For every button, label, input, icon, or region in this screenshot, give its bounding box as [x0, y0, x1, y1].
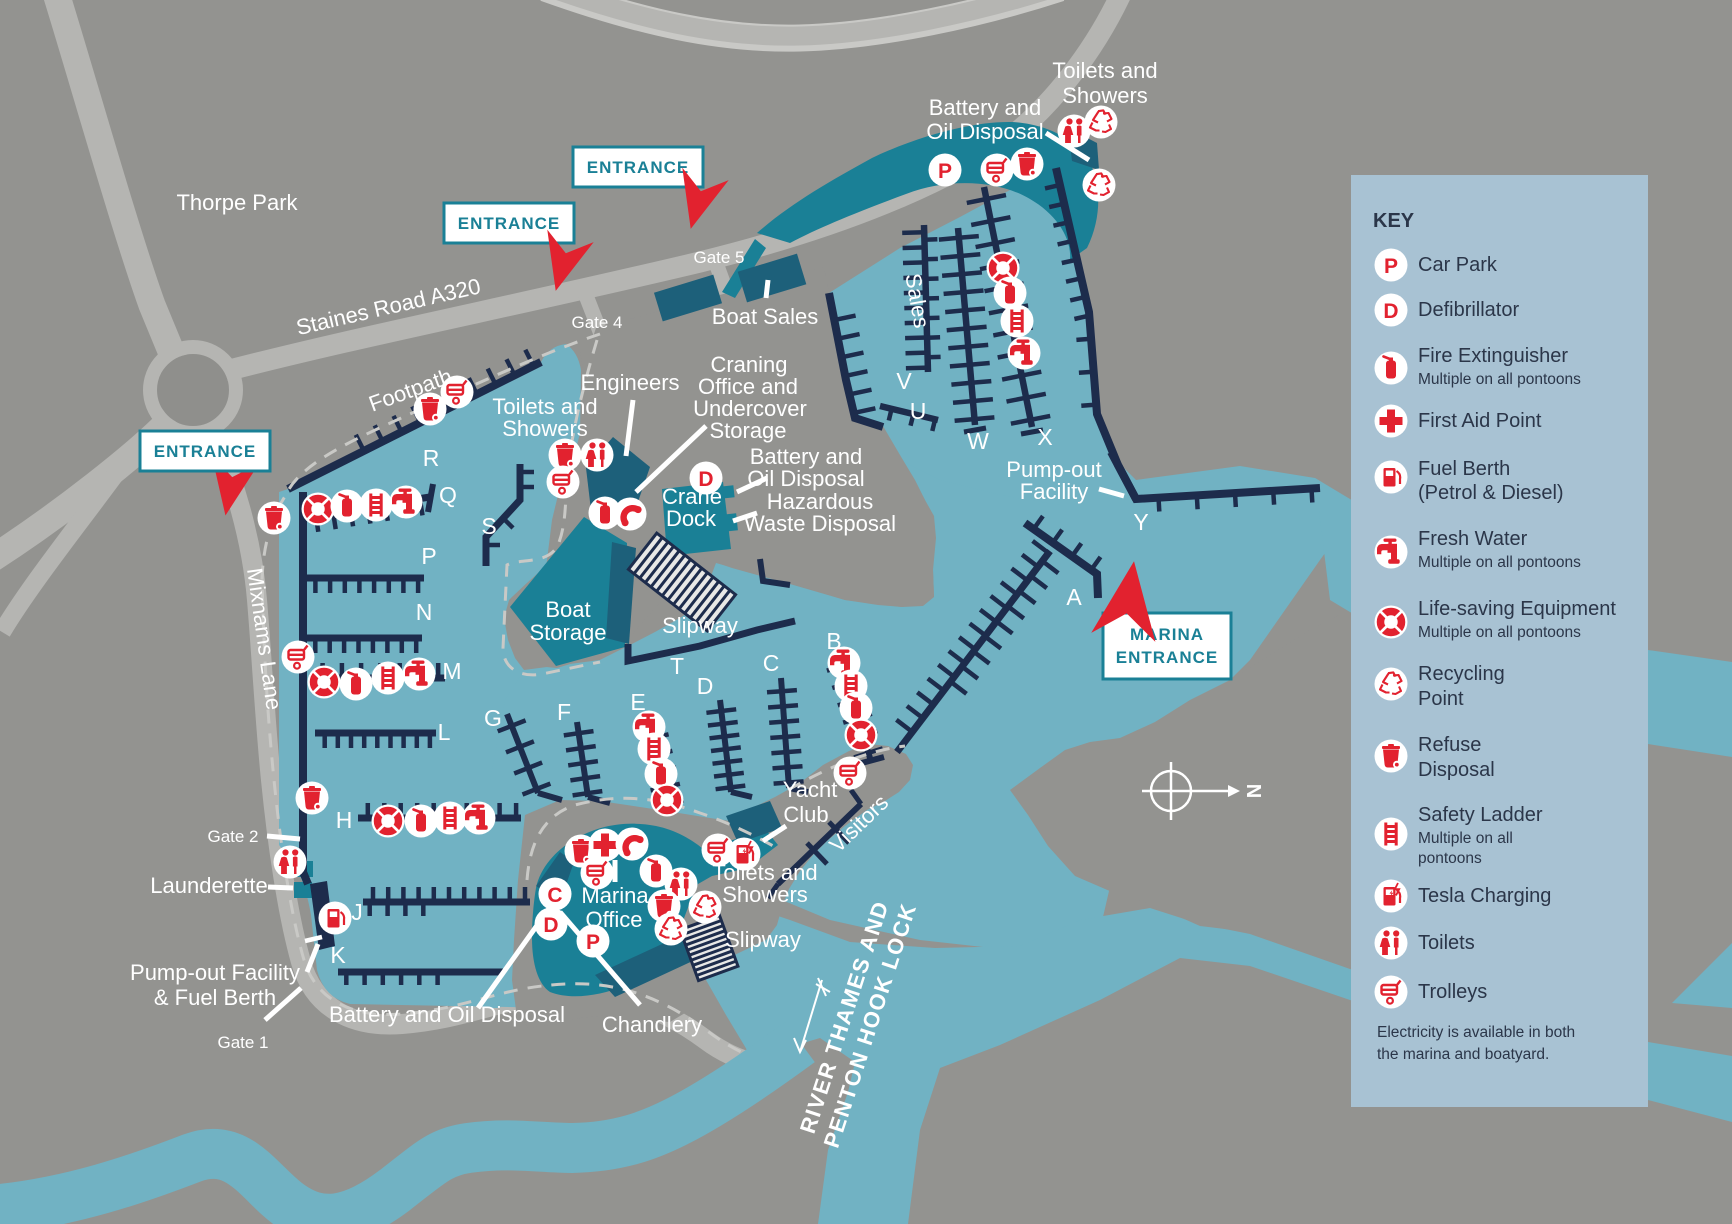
svg-text:R: R	[423, 445, 440, 471]
svg-text:X: X	[1037, 424, 1052, 450]
svg-text:Gate 4: Gate 4	[571, 313, 622, 332]
svg-text:K: K	[330, 942, 346, 968]
svg-text:& Fuel Berth: & Fuel Berth	[154, 985, 276, 1010]
svg-text:Multiple on all pontoons: Multiple on all pontoons	[1418, 554, 1581, 571]
svg-text:Multiple on all pontoons: Multiple on all pontoons	[1418, 624, 1581, 641]
svg-text:Tesla Charging: Tesla Charging	[1418, 885, 1551, 907]
svg-text:Refuse: Refuse	[1418, 734, 1481, 756]
svg-text:ENTRANCE: ENTRANCE	[1116, 648, 1218, 667]
svg-text:Storage: Storage	[709, 418, 786, 443]
svg-text:S: S	[481, 513, 496, 539]
svg-text:Slipway: Slipway	[725, 927, 801, 952]
svg-text:Battery and Oil Disposal: Battery and Oil Disposal	[329, 1002, 565, 1027]
svg-text:Fuel Berth: Fuel Berth	[1418, 458, 1510, 480]
svg-text:ENTRANCE: ENTRANCE	[154, 442, 256, 461]
svg-text:Waste Disposal: Waste Disposal	[744, 511, 896, 536]
svg-text:Fire Extinguisher: Fire Extinguisher	[1418, 345, 1568, 367]
svg-text:Engineers: Engineers	[580, 370, 679, 395]
svg-text:(Petrol & Diesel): (Petrol & Diesel)	[1418, 482, 1564, 504]
svg-text:MARINA: MARINA	[1130, 625, 1204, 644]
svg-text:ENTRANCE: ENTRANCE	[458, 214, 560, 233]
svg-text:Gate 5: Gate 5	[693, 248, 744, 267]
svg-text:L: L	[438, 719, 451, 745]
svg-text:ENTRANCE: ENTRANCE	[587, 158, 689, 177]
svg-text:Electricity is available in bo: Electricity is available in both	[1377, 1024, 1575, 1041]
svg-text:D: D	[697, 673, 714, 699]
svg-text:H: H	[336, 807, 353, 833]
svg-text:Chandlery: Chandlery	[602, 1012, 702, 1037]
svg-text:Showers: Showers	[502, 416, 588, 441]
svg-text:Fresh Water: Fresh Water	[1418, 528, 1528, 550]
svg-text:Disposal: Disposal	[1418, 759, 1495, 781]
svg-text:Boat: Boat	[545, 597, 590, 622]
svg-text:Multiple on all pontoons: Multiple on all pontoons	[1418, 371, 1581, 388]
svg-text:pontoons: pontoons	[1418, 850, 1482, 867]
svg-text:Slipway: Slipway	[662, 613, 738, 638]
svg-text:G: G	[484, 705, 502, 731]
svg-text:Pump-out Facility: Pump-out Facility	[130, 960, 300, 985]
svg-text:Thorpe Park: Thorpe Park	[176, 190, 298, 215]
svg-text:Club: Club	[783, 802, 828, 827]
svg-text:P: P	[421, 543, 436, 569]
svg-text:J: J	[351, 899, 363, 925]
svg-text:M: M	[442, 658, 461, 684]
svg-text:Gate 2: Gate 2	[207, 827, 258, 846]
svg-text:Battery and: Battery and	[929, 95, 1042, 120]
svg-text:Showers: Showers	[722, 882, 808, 907]
svg-text:Boat Sales: Boat Sales	[712, 304, 818, 329]
svg-text:Safety Ladder: Safety Ladder	[1418, 804, 1543, 826]
svg-text:E: E	[630, 689, 645, 715]
svg-text:KEY: KEY	[1373, 210, 1415, 232]
svg-text:First Aid Point: First Aid Point	[1418, 410, 1542, 432]
svg-text:Recycling: Recycling	[1418, 663, 1505, 685]
svg-text:Oil Disposal: Oil Disposal	[747, 466, 864, 491]
svg-text:N: N	[416, 599, 433, 625]
svg-text:Oil Disposal: Oil Disposal	[926, 119, 1043, 144]
svg-text:Toilets and: Toilets and	[1052, 58, 1157, 83]
svg-text:V: V	[896, 368, 912, 394]
svg-text:Facility: Facility	[1020, 479, 1088, 504]
svg-text:Toilets: Toilets	[1418, 932, 1475, 954]
svg-text:the marina and boatyard.: the marina and boatyard.	[1377, 1046, 1549, 1063]
svg-text:Showers: Showers	[1062, 83, 1148, 108]
svg-text:Q: Q	[439, 482, 457, 508]
svg-text:Multiple on all: Multiple on all	[1418, 830, 1513, 847]
svg-text:N: N	[1242, 784, 1264, 798]
svg-text:Storage: Storage	[529, 620, 606, 645]
svg-text:Gate 1: Gate 1	[217, 1033, 268, 1052]
svg-text:Dock: Dock	[666, 506, 717, 531]
svg-text:U: U	[910, 398, 927, 424]
svg-text:Point: Point	[1418, 688, 1464, 710]
svg-text:T: T	[670, 653, 684, 679]
svg-text:C: C	[763, 650, 780, 676]
svg-text:Car Park: Car Park	[1418, 254, 1498, 276]
svg-text:Yacht: Yacht	[783, 777, 838, 802]
svg-text:Launderette: Launderette	[150, 873, 267, 898]
svg-text:F: F	[557, 699, 571, 725]
svg-text:Trolleys: Trolleys	[1418, 981, 1487, 1003]
svg-text:A: A	[1066, 584, 1082, 610]
svg-text:Y: Y	[1133, 509, 1148, 535]
svg-text:W: W	[967, 428, 989, 454]
svg-text:Life-saving Equipment: Life-saving Equipment	[1418, 598, 1616, 620]
svg-text:Defibrillator: Defibrillator	[1418, 299, 1519, 321]
